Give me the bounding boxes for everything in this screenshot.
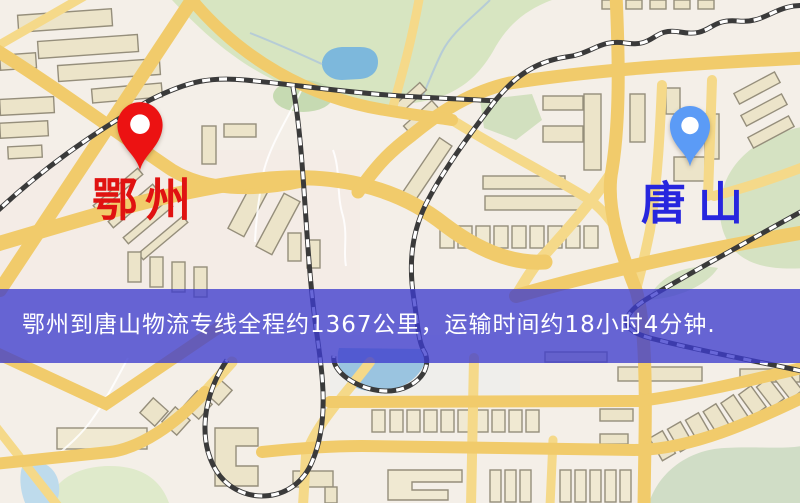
- route-info-text: 鄂州到唐山物流专线全程约1367公里，运输时间约18小时4分钟.: [0, 305, 716, 339]
- map-screenshot: 鄂州 唐山 鄂州到唐山物流专线全程约1367公里，运输时间约18小时4分钟.: [0, 0, 800, 503]
- map-canvas: [0, 0, 800, 503]
- destination-marker[interactable]: [667, 104, 713, 168]
- destination-pin-icon[interactable]: [667, 104, 713, 168]
- origin-marker[interactable]: [114, 100, 166, 172]
- origin-label: 鄂州: [92, 177, 198, 223]
- origin-pin-icon[interactable]: [114, 100, 166, 172]
- route-info-banner: 鄂州到唐山物流专线全程约1367公里，运输时间约18小时4分钟.: [0, 289, 800, 363]
- destination-label: 唐山: [641, 181, 755, 226]
